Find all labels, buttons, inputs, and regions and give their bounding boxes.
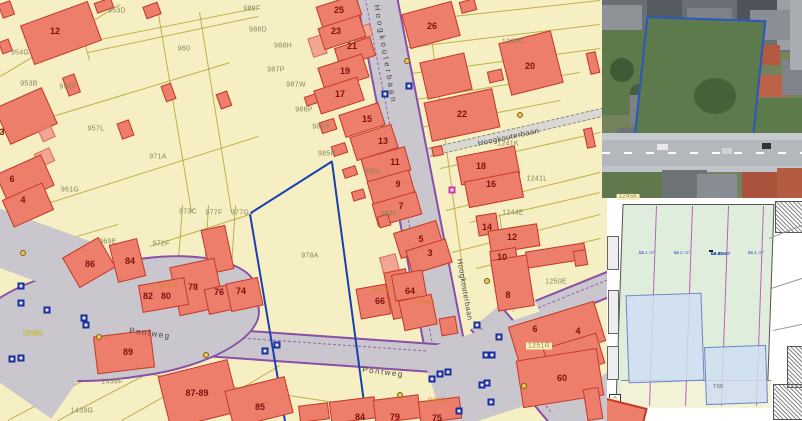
parcel-label: 985R [318, 151, 336, 158]
road-marker-square-icon [382, 91, 389, 98]
road-marker-square-icon [406, 83, 413, 90]
parcel-label: 953B [20, 81, 38, 88]
parcel-label: 954G [11, 50, 29, 57]
building [304, 93, 319, 106]
building-number: 86 [85, 259, 95, 269]
building-number: 3 [0, 127, 5, 137]
building [487, 68, 504, 83]
aerial-car [762, 143, 771, 149]
road-marker-square-icon [262, 348, 269, 355]
parcel-label: 980L [365, 169, 382, 176]
building-number: 17 [335, 89, 345, 99]
building [160, 83, 176, 103]
road-marker-square-icon [429, 376, 436, 383]
aerial-tree-shadow [694, 78, 736, 114]
building-number: 19 [340, 66, 350, 76]
building-number: 74 [236, 286, 246, 296]
road-marker-square-icon [81, 315, 88, 322]
parcel-label: 972G [159, 283, 177, 290]
parcel-label: 986P [295, 107, 313, 114]
building-number: 82 [143, 291, 153, 301]
aerial-tree [610, 58, 634, 82]
parcel-label: 987P [267, 67, 285, 74]
plan-building-footprint [625, 293, 704, 384]
building-number: 20 [525, 61, 535, 71]
road-marker-pink-icon [449, 187, 456, 194]
parcel-label: 977F [205, 210, 222, 217]
road-marker-square-icon [474, 322, 481, 329]
building-number: 26 [427, 21, 437, 31]
building [573, 249, 588, 267]
aerial-car [722, 148, 732, 154]
plan-neighbor-hatched [775, 201, 802, 233]
aerial-red-roof-south [777, 168, 802, 198]
road-marker-dot-icon [397, 392, 403, 398]
building-number: 78 [188, 282, 198, 292]
building [583, 127, 596, 148]
road-marker-dot-icon [521, 383, 527, 389]
parcel-label: 1244E [502, 210, 524, 217]
parcel-label: 957L [88, 126, 105, 133]
aerial-subject-parcel [634, 16, 767, 142]
parcel-boundary-line [199, 12, 232, 212]
road-marker-square-icon [496, 334, 503, 341]
building-number: 7 [398, 201, 403, 211]
building-number: 10 [497, 252, 507, 262]
building [298, 402, 330, 421]
building-number: 60 [557, 373, 567, 383]
aerial-side-street [790, 0, 802, 70]
parcel-label: 961G [61, 187, 79, 194]
building-number: 76 [214, 287, 224, 297]
building-number: 6 [532, 324, 537, 334]
building [419, 52, 472, 99]
parcel-label: 985S [312, 124, 330, 131]
road-marker-square-icon [18, 283, 25, 290]
parcel-label: 958F [59, 84, 76, 91]
road-marker-dot-icon [203, 352, 209, 358]
road-marker-dot-icon [517, 112, 523, 118]
road-marker-square-icon [484, 380, 491, 387]
aerial-garden [752, 98, 802, 138]
road-marker-square-icon [9, 356, 16, 363]
parcel-label: 972F [152, 241, 169, 248]
building [0, 0, 15, 19]
building-number: 66 [375, 296, 385, 306]
aerial-road-markings [602, 152, 802, 154]
building [459, 0, 478, 14]
parcel-label: 978A [301, 253, 319, 260]
parcel-label: 1235C [502, 39, 524, 46]
building-number: 87-89 [185, 388, 208, 398]
building [490, 254, 535, 311]
building-number: 18 [476, 161, 486, 171]
building-number: 79 [390, 412, 400, 421]
plan-boundary-line [773, 322, 802, 331]
parcel-label: 973C [179, 209, 197, 216]
building-number: 23 [331, 26, 341, 36]
plan-neighbor-building [607, 346, 619, 380]
parcel-label: 1439G [71, 408, 94, 415]
parcel-label: 1439F [101, 379, 122, 386]
lot-area: ca …m² [674, 250, 690, 255]
building-number: 64 [405, 286, 415, 296]
road-marker-dot-icon [20, 250, 26, 256]
road-marker-square-icon [18, 300, 25, 307]
parcel-label: 979N [372, 288, 390, 295]
aerial-house-south [697, 174, 737, 198]
parcel-label: 969E [99, 239, 117, 246]
building-number: 14 [482, 222, 492, 232]
parcel-label: 989F [243, 6, 260, 13]
road-marker-square-icon [488, 399, 495, 406]
building-number: 85 [255, 402, 265, 412]
parcel-label: 953D [108, 8, 126, 15]
building-number: 75 [432, 413, 442, 421]
aerial-photo-inset [602, 0, 802, 198]
road-marker-square-icon [18, 355, 25, 362]
parcel-label: 979G [417, 300, 435, 307]
road-marker-dot-icon [404, 58, 410, 64]
building-number: 4 [20, 195, 25, 205]
road-marker-square-icon [437, 371, 444, 378]
road-marker-square-icon [44, 307, 51, 314]
building [586, 51, 601, 75]
road-marker-square-icon [456, 408, 463, 415]
road-marker-square-icon [83, 322, 90, 329]
building-number: 89 [123, 347, 133, 357]
aerial-red-roof-south [742, 172, 777, 198]
parcel-label: 971A [149, 154, 167, 161]
plan-neighbor-hatched [773, 384, 802, 420]
building-number: 4 [575, 326, 580, 336]
building [329, 396, 377, 421]
plan-building-footprint [704, 345, 768, 405]
plan-neighbor-building [608, 290, 619, 334]
road-marker-square-icon [445, 369, 452, 376]
parcel-label: 987W [286, 82, 306, 89]
plan-neighbor-building [607, 236, 619, 270]
building [216, 90, 233, 109]
building-number: 12 [507, 232, 517, 242]
site-plan-inset: lot 1ca …m²lot 2ca …m²lot 3ca 436m²lot 4… [607, 198, 802, 421]
building-number: 80 [161, 291, 171, 301]
plan-dimension-label: 7.50 [713, 384, 723, 390]
building-number: 12 [50, 26, 60, 36]
building-number: 84 [125, 256, 135, 266]
building-number: 9 [395, 179, 400, 189]
road-marker-square-icon [274, 342, 281, 349]
parcel-label: 1241L [527, 176, 548, 183]
road-marker-dot-icon [484, 278, 490, 284]
building-number: 16 [486, 179, 496, 189]
building [224, 376, 293, 421]
cadastral-map-view: 953D989F988D954G960988H987P1235C987W953B… [0, 0, 802, 421]
plan-neighbor-hatched [787, 346, 802, 388]
parcel-boundary-line [88, 16, 258, 53]
parcel-label: 1250E [545, 279, 567, 286]
aerial-sidewalk [602, 133, 802, 140]
building-number: 6 [9, 174, 14, 184]
building [116, 119, 134, 139]
building-number: 22 [457, 109, 467, 119]
building [342, 165, 358, 179]
building-number: 84 [355, 412, 365, 421]
subject-parcel-boundary [250, 160, 333, 214]
building [431, 145, 444, 157]
lot-area: ca …m² [639, 250, 655, 255]
building-number: 21 [347, 41, 357, 51]
parcel-label: 960 [178, 46, 191, 53]
parcel-label: 977G [231, 210, 249, 217]
parcel-boundary-line [157, 8, 192, 212]
parcel-label: 988H [274, 43, 292, 50]
parcel-label: 1251R [526, 343, 552, 350]
building-number: 25 [334, 5, 344, 15]
building [20, 1, 102, 65]
road-marker-square-icon [489, 352, 496, 359]
parcel-label: 578/2 [23, 331, 42, 338]
parcel-label: 988D [249, 27, 267, 34]
building-number: 13 [378, 136, 388, 146]
building [439, 316, 459, 337]
parcel-label: 988D [428, 398, 446, 405]
building-number: 8 [505, 290, 510, 300]
aerial-car [657, 144, 668, 150]
plan-lot-label: lot 3ca 436m² [709, 250, 713, 252]
building-number: 15 [362, 114, 372, 124]
building-number: 5 [418, 234, 423, 244]
parcel-label: 1245K [617, 194, 640, 200]
building-number: 11 [390, 157, 400, 167]
road-marker-dot-icon [96, 334, 102, 340]
building-number: 3 [427, 248, 432, 258]
parcel-label: 983K [380, 211, 398, 218]
lot-area: ca …m² [748, 250, 764, 255]
lot-area: ca 436m² [711, 251, 730, 256]
plan-boundary-line [771, 275, 802, 289]
building [351, 188, 366, 201]
